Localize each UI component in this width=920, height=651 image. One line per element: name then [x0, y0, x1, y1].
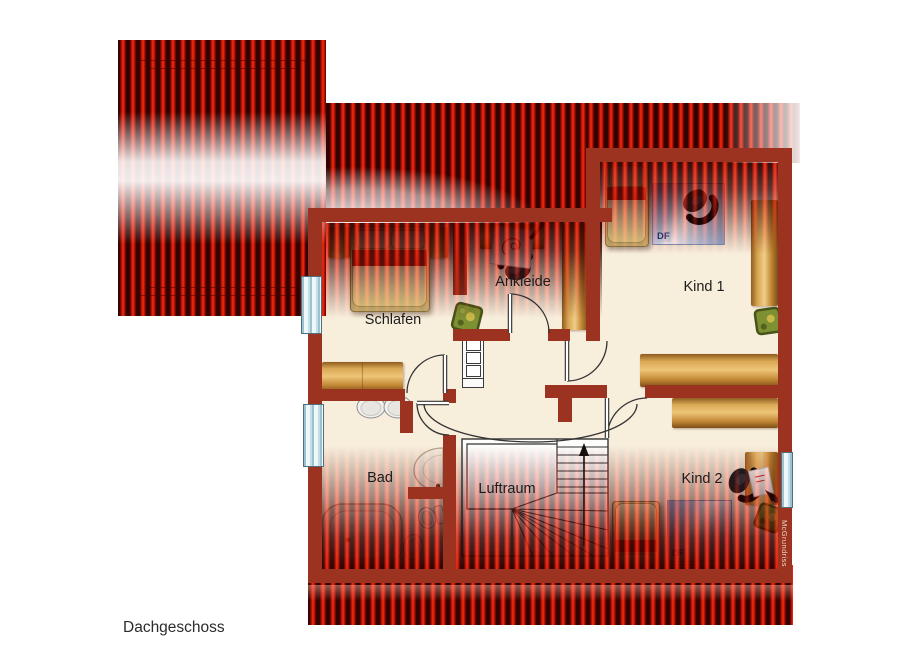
room-label-schlafen: Schlafen	[365, 312, 421, 328]
room-label-bad: Bad	[367, 470, 393, 486]
door-kind1	[567, 341, 607, 381]
room-label-ankleide: Ankleide	[495, 274, 551, 290]
floor-plan: DF DF	[0, 0, 920, 651]
room-label-kind1: Kind 1	[683, 279, 724, 295]
door-schlafen	[407, 355, 445, 393]
watermark: McGrundriss	[780, 520, 789, 567]
door-ankleide	[510, 294, 549, 333]
floor-title: Dachgeschoss	[123, 619, 225, 637]
room-label-kind2: Kind 2	[681, 471, 722, 487]
door-kind2	[607, 398, 647, 438]
room-label-luftraum: Luftraum	[478, 481, 535, 497]
